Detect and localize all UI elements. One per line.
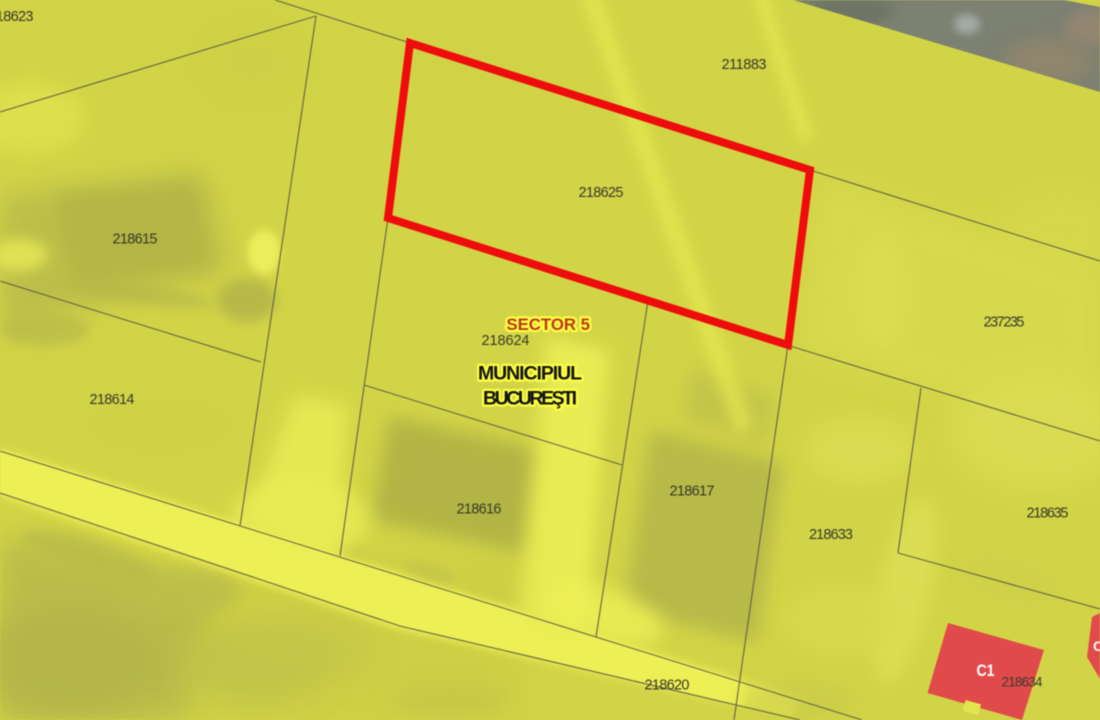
svg-text:218616: 218616	[457, 502, 502, 518]
svg-text:218620: 218620	[645, 678, 690, 694]
svg-text:SECTOR 5: SECTOR 5	[506, 315, 590, 334]
svg-text:237235: 237235	[984, 315, 1025, 331]
svg-text:218615: 218615	[113, 232, 158, 248]
svg-text:C1: C1	[977, 661, 995, 680]
svg-text:C: C	[1093, 638, 1100, 654]
svg-text:211883: 211883	[722, 57, 767, 73]
svg-text:BUCUREŞTI: BUCUREŞTI	[483, 388, 577, 410]
svg-text:218623: 218623	[0, 9, 34, 25]
svg-text:218614: 218614	[90, 392, 135, 408]
svg-text:218633: 218633	[809, 527, 853, 543]
svg-text:218625: 218625	[579, 185, 624, 201]
svg-text:218635: 218635	[1027, 506, 1069, 522]
svg-text:MUNICIPIUL: MUNICIPIUL	[478, 363, 582, 385]
svg-text:218617: 218617	[670, 484, 715, 500]
svg-text:218624: 218624	[482, 333, 530, 349]
svg-text:218634: 218634	[1002, 675, 1043, 690]
